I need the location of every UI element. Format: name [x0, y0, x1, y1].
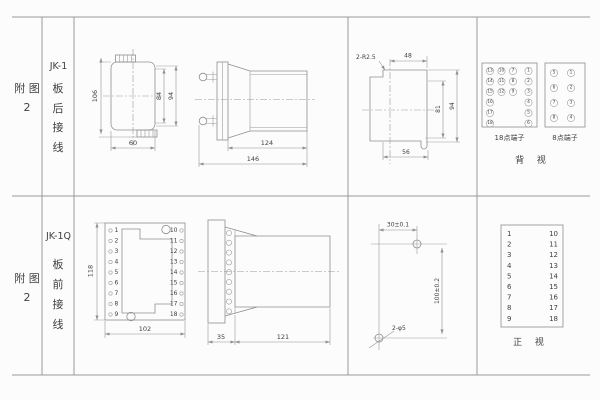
dim-width: 60	[129, 139, 137, 147]
plate-terminal: 3	[115, 248, 119, 255]
table-terminal: 1	[507, 230, 511, 238]
front-view-label: 正 视	[496, 335, 566, 348]
rear-view-label: 背 视	[498, 153, 568, 166]
technical-drawing-sheet: 106 84 94 60 124 146 2-R2.	[0, 0, 600, 400]
dim-plate-depth: 35	[217, 333, 225, 341]
terminal: 15	[487, 89, 493, 95]
plate-terminal: 16	[170, 290, 178, 297]
terminal: 5	[553, 70, 556, 76]
dim-bottom-width: 56	[402, 149, 410, 156]
corner-radius-note: 2-R2.5	[356, 54, 376, 61]
table-terminal: 4	[507, 262, 512, 270]
dim-top-width: 48	[404, 53, 412, 60]
front-side-view: 35 121	[198, 220, 340, 345]
plate-terminal: 5	[115, 269, 119, 276]
terminal: 8	[553, 115, 556, 121]
top-terminal-tab	[116, 55, 136, 62]
terminal: 6	[553, 85, 556, 91]
plate-terminal: 7	[115, 290, 119, 297]
model-label-row1: JK-1	[43, 61, 74, 72]
table-terminal: 10	[549, 230, 558, 238]
figure-label-row2: 附 图 2	[12, 269, 42, 307]
terminal-18pt-label: 18点端子	[480, 133, 539, 143]
dim-body-depth: 121	[277, 333, 289, 341]
rear-front-view: 106 84 94 60	[91, 49, 178, 151]
plate-terminal: 11	[170, 238, 178, 245]
dim-total-depth: 146	[247, 155, 259, 163]
dim-hole-spacing-v: 100±0.2	[434, 278, 441, 304]
mounting-hole-bottom	[127, 312, 135, 320]
hole-diameter-note: 2-φ5	[392, 325, 406, 332]
plate-terminal: 15	[170, 280, 178, 287]
table-terminal: 17	[549, 304, 558, 312]
wiring-type-row2: 板 前 接 线	[50, 255, 66, 335]
plate-terminal: 18	[170, 311, 178, 318]
front-drilling-plan: 30±0.1 100±0.2 2-φ5	[369, 222, 447, 351]
terminal-box-8	[545, 63, 585, 127]
table-terminal: 5	[507, 272, 511, 280]
plate-terminal: 8	[115, 301, 119, 308]
table-terminal: 15	[549, 283, 558, 291]
terminal-screw-bottom	[199, 117, 207, 125]
terminal: 6	[527, 120, 530, 126]
terminal: 2	[527, 78, 530, 84]
terminal: 3	[527, 89, 530, 95]
dim-plate-width: 102	[139, 325, 151, 333]
plate-terminal: 4	[115, 259, 119, 266]
front-terminal-table: 1 2 3 4 5 6 7 8 9 10 11 12 13 14 15 16 1…	[501, 225, 563, 327]
terminal: 13	[487, 68, 493, 74]
terminal: 11	[499, 78, 505, 84]
plate-terminal: 10	[170, 227, 178, 234]
dim-inner-height: 84	[155, 92, 163, 100]
dim-inner-height: 81	[435, 105, 442, 113]
plate-terminal: 2	[115, 238, 119, 245]
table-terminal: 7	[507, 294, 511, 302]
terminal: 5	[527, 110, 530, 116]
terminal: 1	[570, 70, 573, 76]
terminal: 4	[527, 99, 530, 105]
front-plate-view: 1 2 3 4 5 6 7 8 9 10 11 12 13 14 15 16 1…	[87, 223, 186, 338]
dim-outer-height: 94	[167, 92, 175, 100]
plate-inner-outline	[122, 229, 172, 313]
rear-side-view: 124 146	[195, 62, 315, 167]
terminal: 7	[553, 100, 556, 106]
terminal-8pt-label: 8点端子	[543, 133, 587, 143]
terminal-block-18pt: 13 14 15 16 17 18 10 11 12 7 8 9 1 2 3 4…	[482, 63, 537, 127]
bottom-terminal-tab	[137, 130, 157, 137]
terminal: 1	[527, 68, 530, 74]
table-terminal: 2	[507, 241, 511, 249]
wiring-type-row1: 板 后 接 线	[50, 79, 66, 157]
terminal: 8	[512, 78, 515, 84]
terminal: 16	[487, 99, 493, 105]
plate-terminal: 14	[170, 269, 178, 276]
terminal: 9	[512, 89, 515, 95]
plate-terminal: 6	[115, 280, 119, 287]
table-terminal: 11	[549, 241, 558, 249]
terminal: 10	[499, 68, 505, 74]
plate-terminal: 12	[170, 248, 178, 255]
dim-body-depth: 124	[261, 139, 273, 147]
table-terminal: 14	[549, 272, 558, 280]
terminal-screw-top	[199, 73, 207, 81]
table-terminal: 13	[549, 262, 558, 270]
table-terminal: 6	[507, 283, 512, 291]
model-label-row2: JK-1Q	[41, 231, 76, 242]
terminal: 17	[487, 110, 493, 116]
terminal: 18	[487, 120, 493, 126]
terminal: 3	[570, 100, 573, 106]
table-terminal: 9	[507, 315, 511, 323]
terminal: 2	[570, 85, 573, 91]
table-terminal: 3	[507, 251, 511, 259]
terminal: 4	[570, 115, 573, 121]
terminal: 12	[499, 89, 505, 95]
terminal: 7	[512, 68, 515, 74]
figure-label-row1: 附 图 2	[12, 79, 42, 117]
terminal: 14	[487, 78, 493, 84]
dim-height: 94	[449, 102, 456, 110]
dim-height: 106	[91, 90, 99, 102]
table-terminal: 8	[507, 304, 511, 312]
cutout-outline	[370, 70, 427, 149]
plate-terminal: 13	[170, 259, 178, 266]
plate-terminal: 1	[115, 227, 119, 234]
dim-plate-height: 118	[87, 265, 95, 277]
plate-terminal: 17	[170, 301, 178, 308]
plate-terminal: 9	[115, 311, 119, 318]
table-terminal: 18	[549, 315, 558, 323]
terminal-block-8pt: 5 6 7 8 1 2 3 4	[545, 63, 585, 127]
dim-hole-spacing-h: 30±0.1	[387, 222, 409, 229]
table-terminal: 16	[549, 294, 558, 302]
rear-panel-cutout: 2-R2.5 48 81 94 56	[356, 53, 460, 165]
table-terminal: 12	[549, 251, 558, 259]
